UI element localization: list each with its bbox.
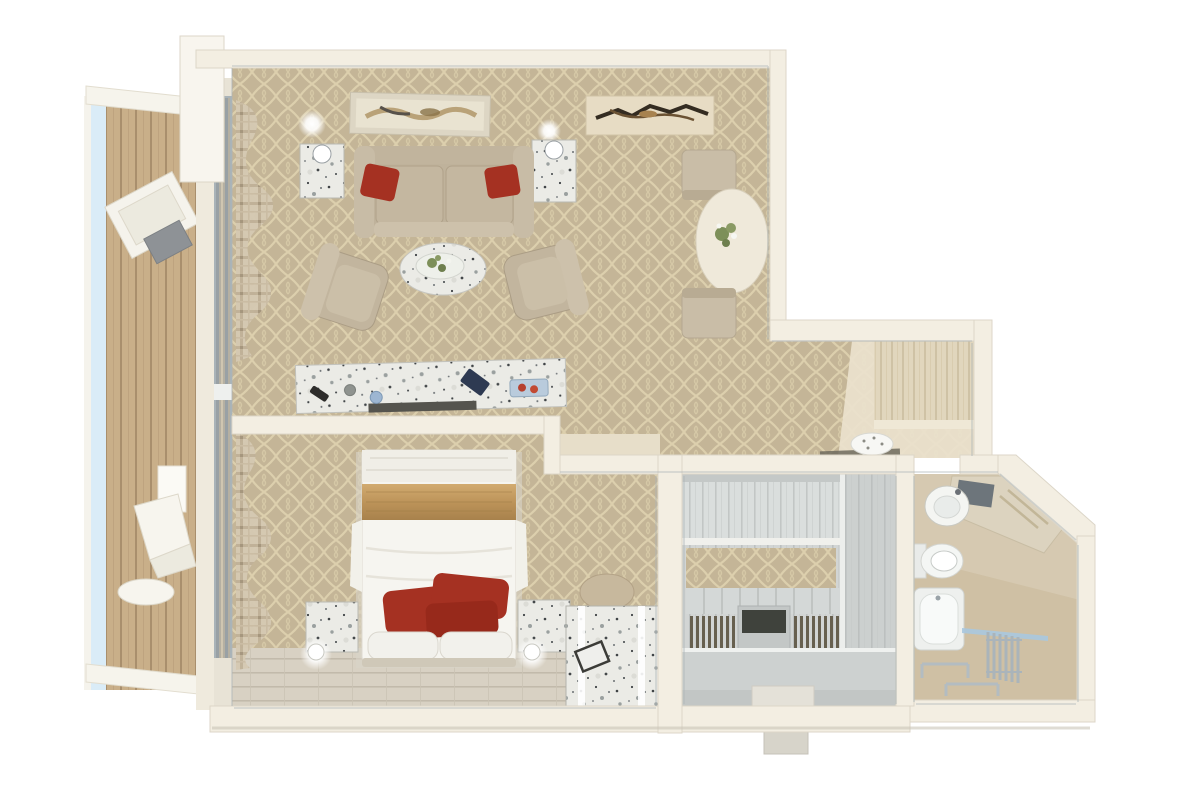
faucet (955, 489, 961, 495)
bed-skirt-left (350, 520, 362, 592)
hall-top-wall (770, 320, 992, 341)
bedroom-window-glass (216, 400, 230, 658)
island-dark-top (742, 610, 786, 633)
double-bed (350, 450, 528, 667)
island-dresser (738, 606, 790, 652)
window-transom (214, 384, 232, 400)
floor-plan-image (0, 0, 1182, 788)
passage-floor-strip (556, 434, 660, 458)
bed-skirt-right (516, 520, 528, 592)
white-pillow-left (368, 632, 438, 660)
closet-bathroom-divider (896, 455, 914, 706)
abstract-art-right (586, 96, 714, 135)
bathroom-right-wall (1077, 536, 1095, 722)
table-lamp-left (313, 145, 331, 163)
living-room-right-wall (770, 50, 786, 323)
bench-strap-right (638, 606, 645, 706)
hall-right-wall (974, 320, 992, 474)
divider-jog-post (544, 416, 560, 474)
abstract-art-left (349, 92, 490, 137)
blue-glass (370, 391, 382, 403)
headboard (362, 658, 516, 667)
white-pillow-right (440, 632, 512, 660)
dining-chair-bottom (682, 292, 736, 338)
bedroom-closet-divider (658, 455, 682, 733)
ice-bucket (344, 384, 355, 395)
sofa (354, 146, 534, 238)
toilet (914, 544, 963, 578)
sconce-glow-left (298, 110, 326, 138)
towel-sculpture (851, 433, 893, 455)
marble-luggage-bench (566, 606, 658, 706)
inner-wall-hall-left (556, 455, 912, 474)
round-sink (925, 486, 969, 526)
marble-console (295, 358, 566, 414)
sofa-front-edge (374, 222, 514, 237)
red-sofa-pillow-right (484, 164, 521, 200)
inner-wall-hall-right (960, 455, 1004, 474)
floor-plan-svg (0, 0, 1182, 788)
leaf-side-table (118, 579, 174, 605)
bathtub (914, 588, 964, 650)
wardrobe-edge-trim (840, 474, 845, 648)
closet-carpet-strip (686, 548, 836, 588)
table-lamp-right (545, 141, 563, 159)
bed-lamp-right (524, 644, 540, 660)
fruit-tray (510, 379, 548, 397)
tub-faucet (936, 596, 941, 601)
bed-lamp-left (308, 644, 324, 660)
dining-table (696, 189, 768, 293)
window-cap-bottom (214, 658, 232, 708)
foot-fold (362, 450, 516, 482)
railing-cap (84, 96, 91, 690)
door-panel-base (874, 420, 974, 429)
bedroom-divider-wall (232, 416, 560, 434)
wood-entry-door-panel (874, 341, 974, 425)
sconce-glow-right (537, 119, 561, 143)
vanity-stool (580, 574, 634, 610)
oval-marble-coffee-table (400, 243, 486, 295)
dining-chair-bottom-back (682, 288, 736, 298)
